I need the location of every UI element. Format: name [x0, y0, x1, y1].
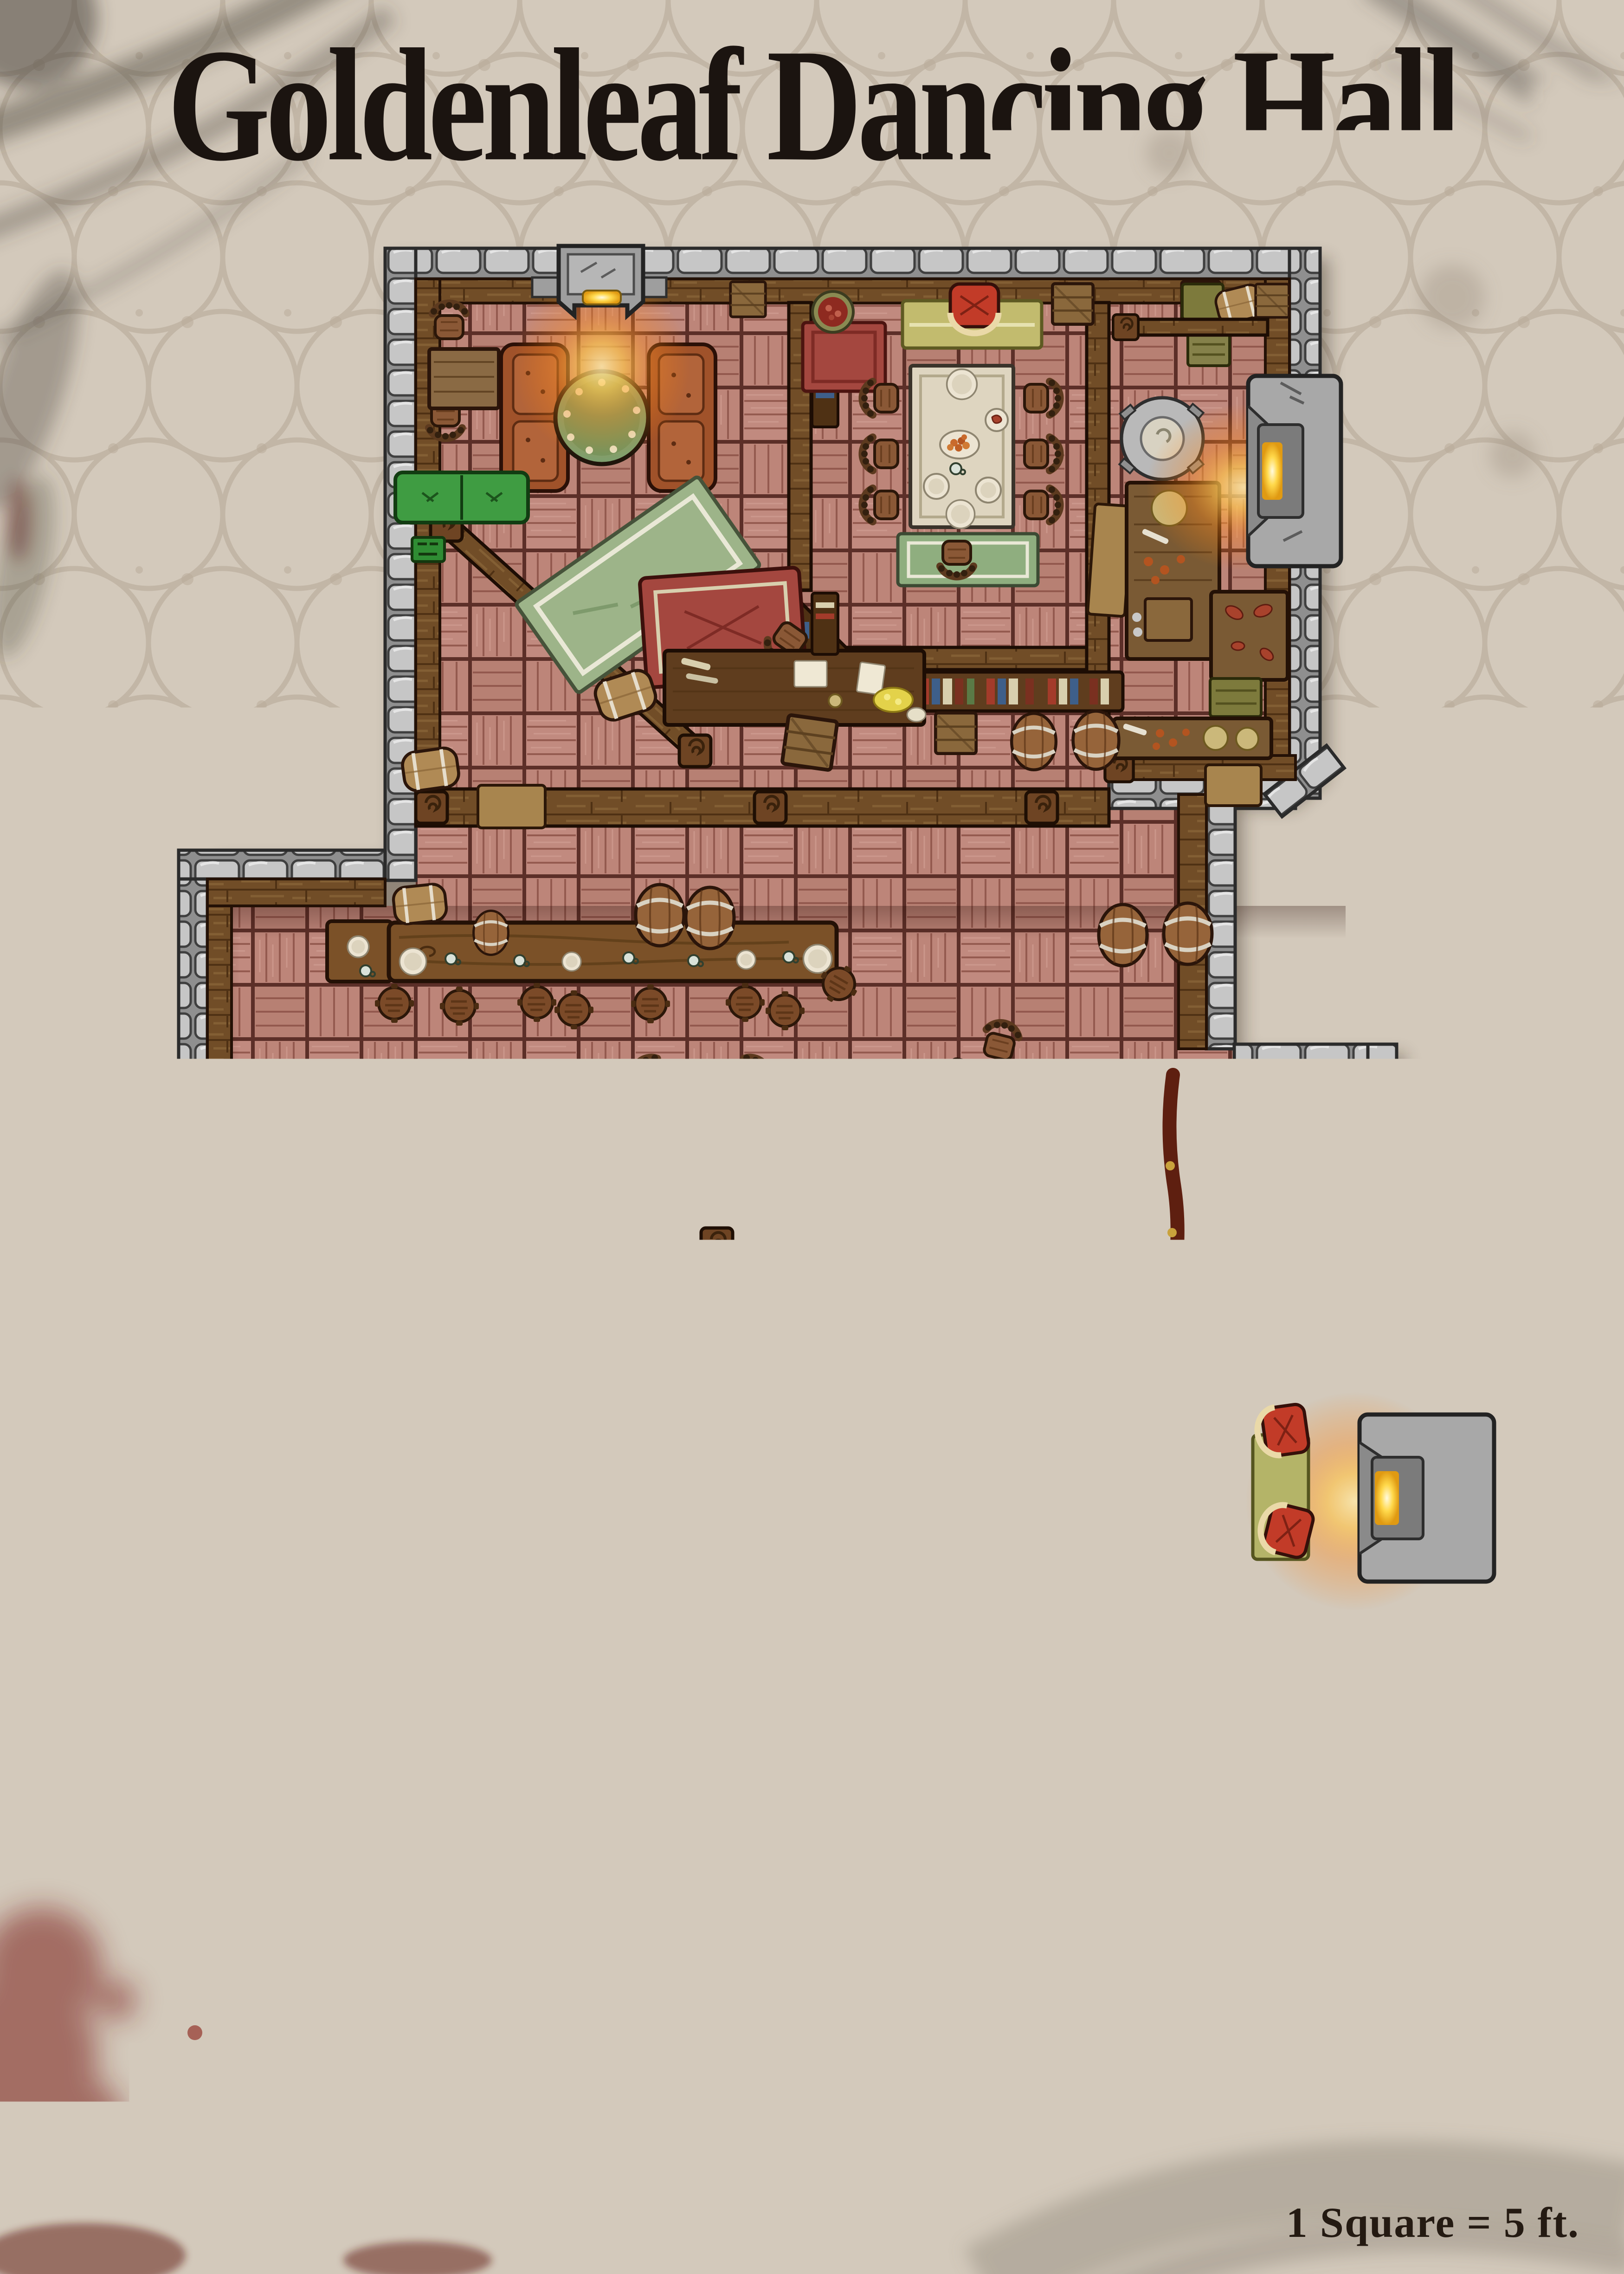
- lounge-doormat: [412, 537, 445, 562]
- dining-table-set: [861, 366, 1061, 529]
- kitchen-beam: [1113, 315, 1268, 340]
- storage-rug: [1261, 2038, 1309, 2143]
- bottom-armchair: [984, 2041, 1038, 2096]
- stage-crate: [647, 1350, 716, 1419]
- dining-side-rug: [898, 534, 1038, 586]
- hall-door: [478, 785, 545, 828]
- torch-stand-icon: [970, 1703, 1095, 1828]
- kitchen-prep-table-bottom: [1114, 718, 1271, 758]
- battle-map-canvas: Goldenleaf Dancing Hall 1 Square = 5 ft.: [0, 0, 1624, 2274]
- kitchen-meat-board: [1211, 592, 1288, 680]
- map-title: Goldenleaf Dancing Hall: [168, 12, 1457, 198]
- torch-stand-icon: [529, 1325, 654, 1450]
- lounge-desk: [664, 651, 926, 725]
- instrument-table: [808, 1282, 950, 1348]
- lounge-crate: [730, 282, 765, 317]
- dining-crate: [1052, 284, 1093, 324]
- map-artwork: [0, 0, 1624, 2274]
- kitchen-back-door: [1205, 765, 1261, 806]
- torch-stand-icon: [529, 1703, 654, 1828]
- right-fireplace: [1246, 1392, 1494, 1610]
- entrance-porch: [514, 246, 690, 459]
- statues-left: [354, 1595, 409, 1926]
- lounge-bench: [395, 472, 528, 523]
- kitchen-crate-low: [1210, 678, 1261, 717]
- torch-stand-icon: [970, 1325, 1095, 1450]
- dining-armchair: [950, 284, 999, 333]
- right-wall-benches: [1248, 1725, 1347, 2008]
- scale-note: 1 Square = 5 ft.: [1286, 2198, 1579, 2247]
- stage-rug-drum: [768, 1354, 907, 1418]
- bookshelf-row: [900, 672, 1123, 711]
- bar-counter: [327, 921, 837, 982]
